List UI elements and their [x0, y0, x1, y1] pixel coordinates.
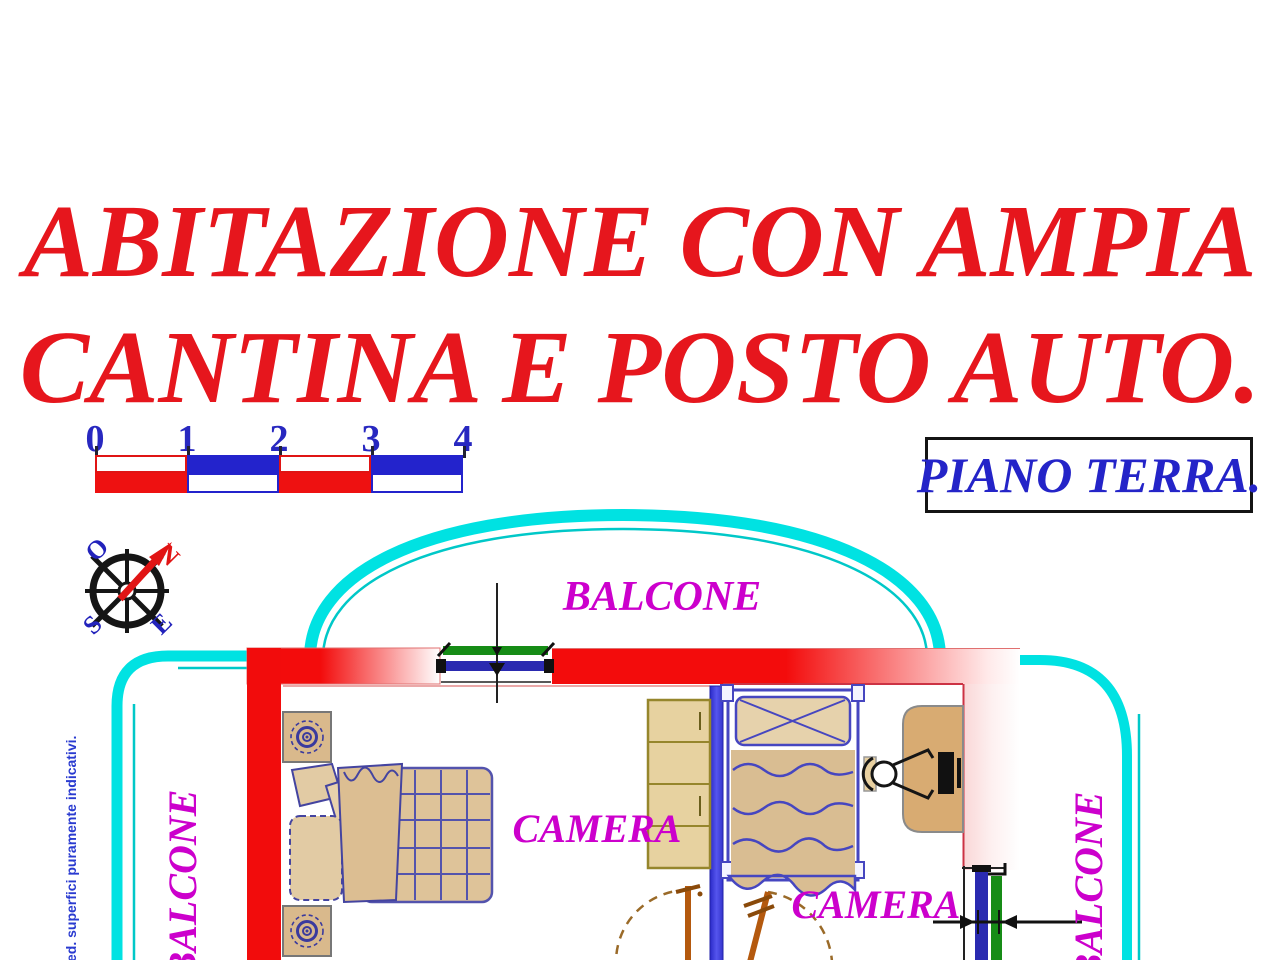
nightstand-bottom: [283, 906, 331, 956]
partition-wall: [710, 686, 723, 960]
camera-right-label: CAMERA: [792, 882, 961, 927]
camera-left-label: CAMERA: [513, 806, 682, 851]
double-bed: [290, 764, 492, 902]
balcony-top-label: BALCONE: [562, 574, 761, 620]
compass-north-label: N: [152, 538, 186, 572]
floor-plan-page: ABITAZIONE CON AMPIA CANTINA E POSTO AUT…: [0, 0, 1280, 960]
compass-rose-icon: N O S E: [77, 532, 185, 640]
door-left: [616, 886, 703, 960]
single-bed: [721, 685, 864, 896]
floor-plan-drawing: N O S E BALCONE CAMERA CAMERA BALCONE BA…: [0, 0, 1280, 960]
nightstand-top: [283, 712, 331, 762]
balcony-left-label: BALCONE: [160, 790, 205, 960]
disclaimer-text: ed. superfici puramente indicativi.: [63, 736, 79, 960]
balcony-right-label: BALCONE: [1066, 792, 1111, 960]
